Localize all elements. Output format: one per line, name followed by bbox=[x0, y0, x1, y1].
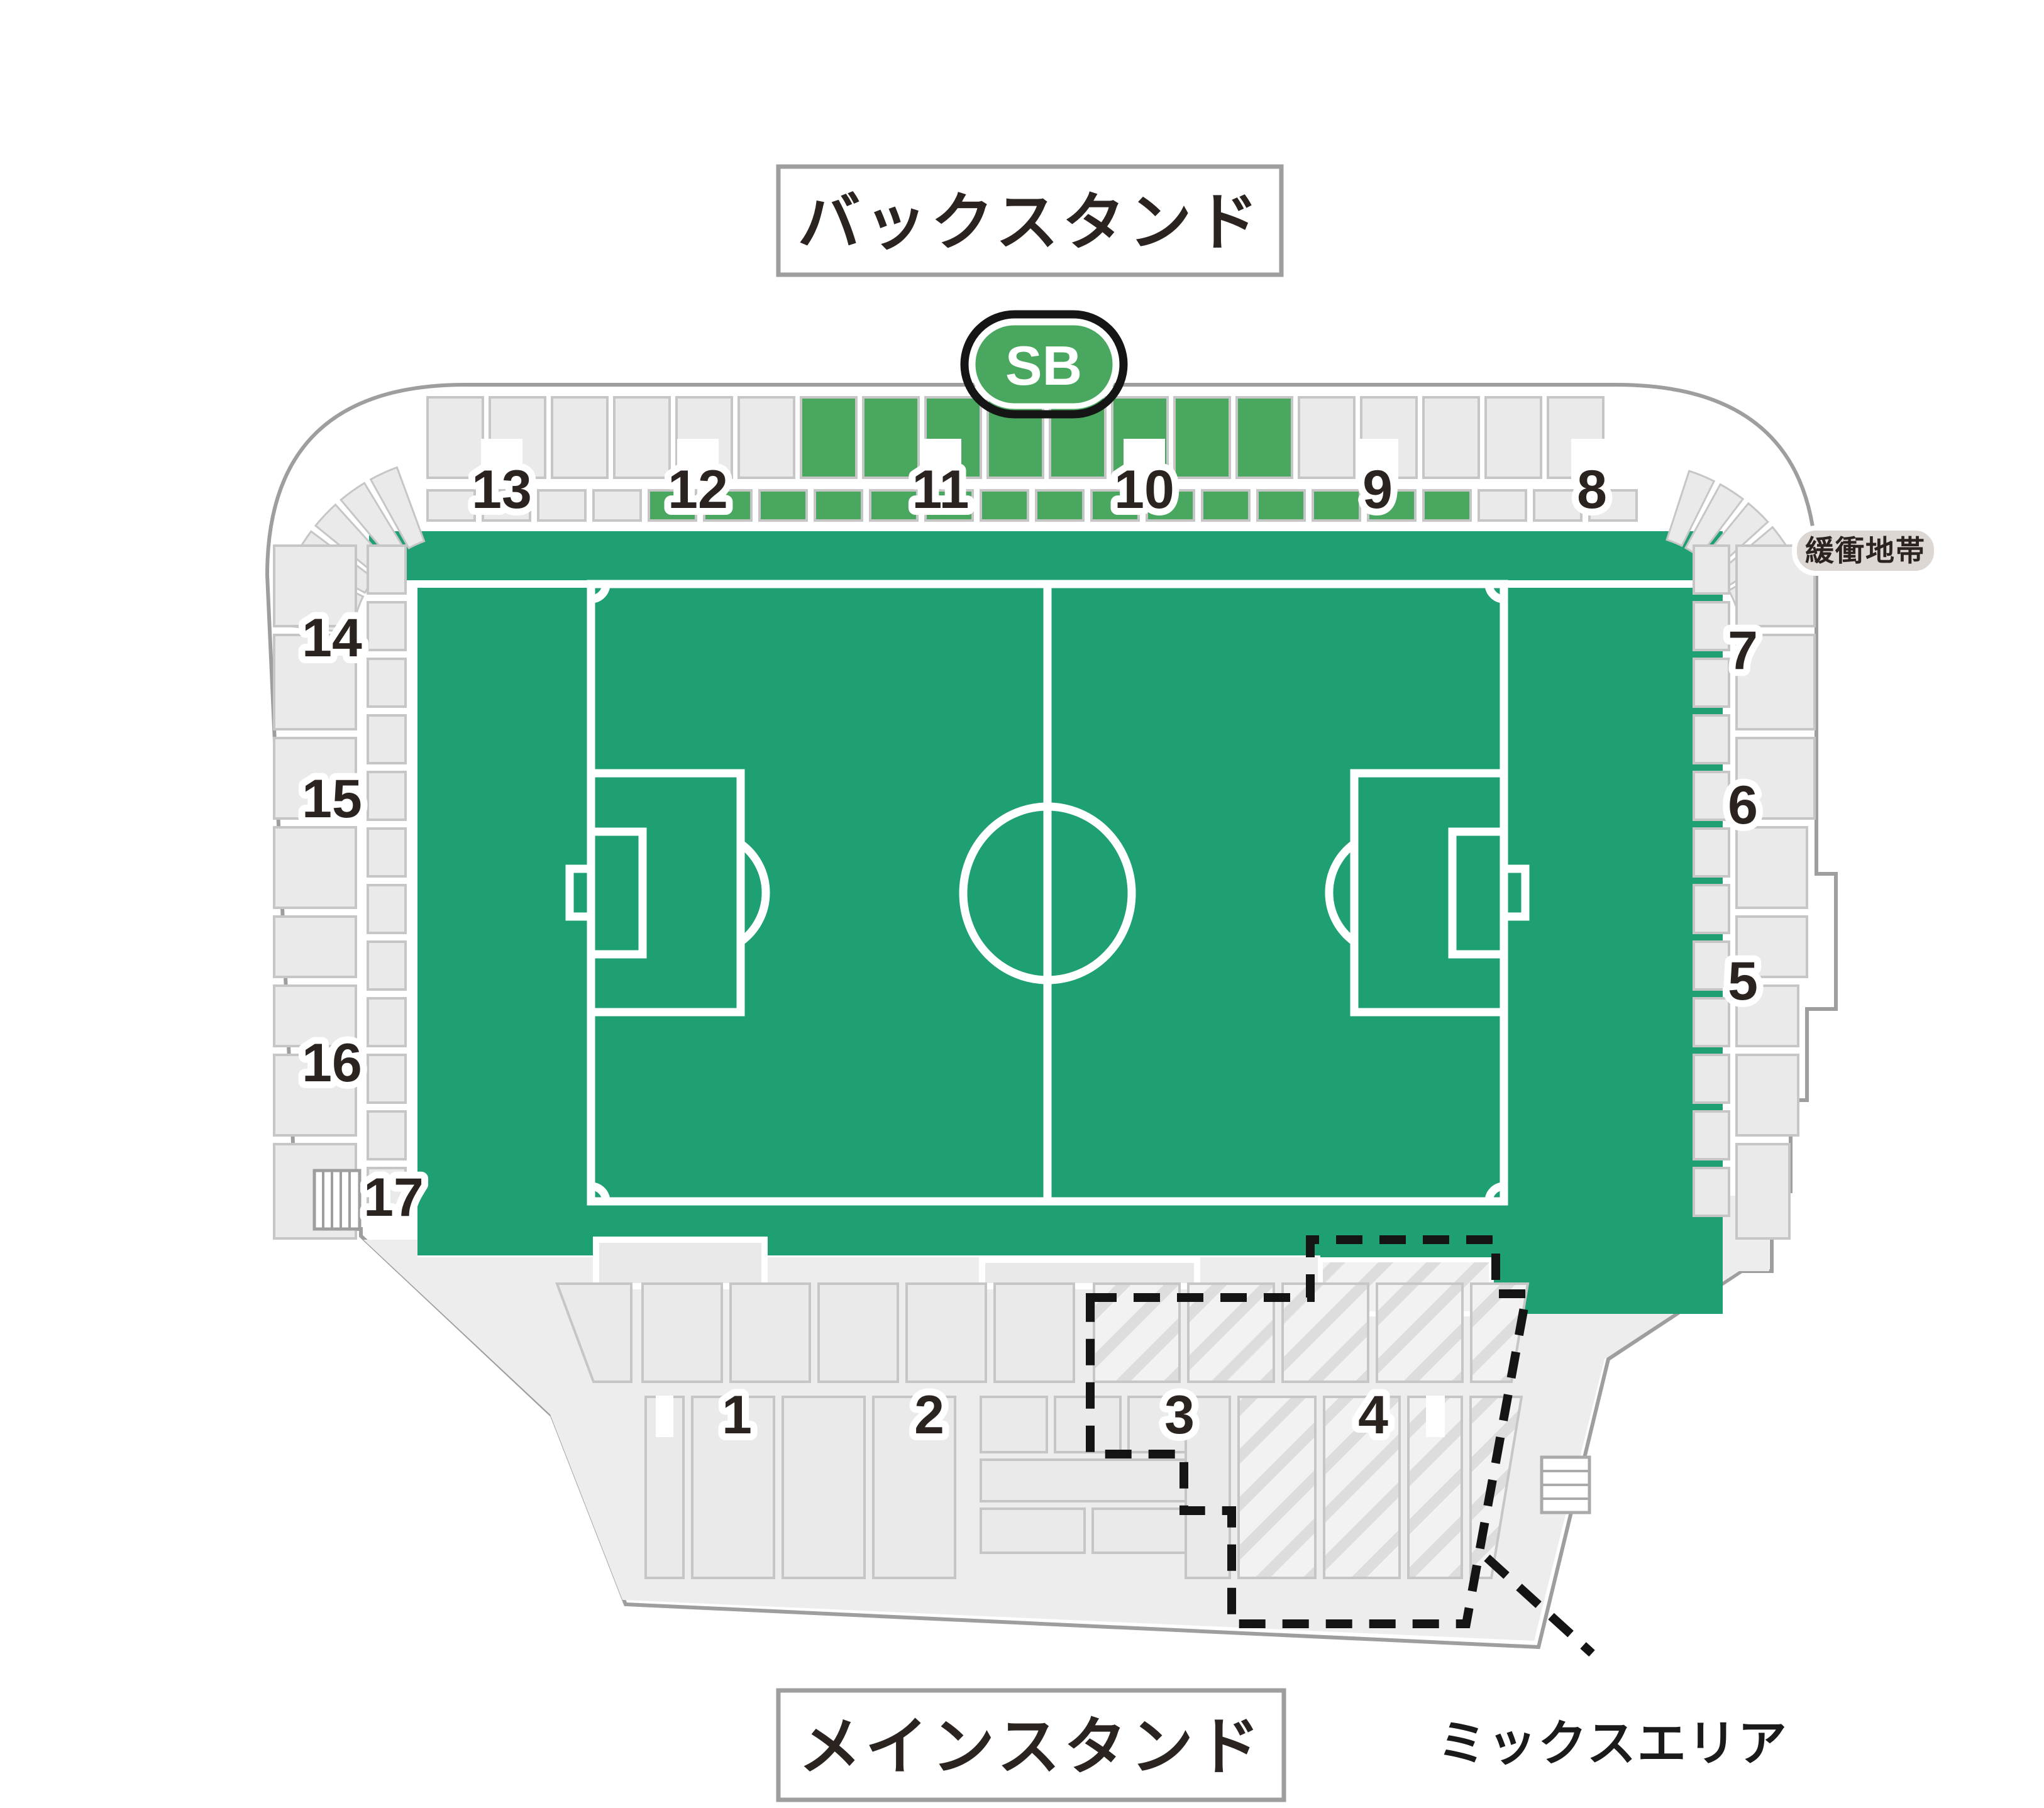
back-stand-upper-block-highlight bbox=[1237, 397, 1292, 478]
west-stand-block bbox=[274, 917, 356, 977]
west-stand-inner-block bbox=[368, 1055, 406, 1103]
back-stand-upper-block-highlight bbox=[1174, 397, 1230, 478]
back-stand-upper-block-highlight bbox=[863, 397, 919, 478]
west-stand-block bbox=[274, 827, 356, 908]
west-stand-inner-block bbox=[368, 998, 406, 1046]
section-17-label: 17 bbox=[363, 1167, 424, 1228]
stadium-seat-map-page: ミックスエリア バックスタンド SB 緩衝地帯 メインスタンド 13121110… bbox=[0, 0, 2044, 1808]
section-10-label: 10 bbox=[1114, 460, 1174, 520]
west-stand-inner-block bbox=[368, 885, 406, 933]
back-stand-lower-block-highlight bbox=[1313, 490, 1360, 521]
east-stand-block bbox=[1737, 827, 1807, 908]
east-stand-block bbox=[1737, 1144, 1789, 1238]
section-15-label: 15 bbox=[302, 769, 362, 829]
back-stand-lower-block bbox=[1534, 490, 1581, 521]
section-16-label: 16 bbox=[302, 1033, 362, 1093]
section-9-label: 9 bbox=[1362, 460, 1393, 520]
section-3-label: 3 bbox=[1164, 1385, 1195, 1445]
section-8-label: 8 bbox=[1577, 460, 1607, 520]
section-14-label: 14 bbox=[302, 608, 362, 668]
section-4-label: 4 bbox=[1358, 1385, 1388, 1445]
east-stand-inner-block bbox=[1694, 1111, 1729, 1159]
west-stand-inner-block bbox=[368, 829, 406, 876]
back-stand-lower-block-highlight bbox=[1257, 490, 1305, 521]
west-stand-inner-block bbox=[368, 602, 406, 650]
back-stand-lower-block-highlight bbox=[760, 490, 807, 521]
main-stand-upper-row bbox=[557, 1284, 1528, 1382]
section-11-label: 11 bbox=[912, 460, 970, 520]
back-stand-title-text: バックスタンド bbox=[798, 187, 1262, 258]
east-stand-inner-block bbox=[1694, 602, 1729, 650]
east-stand-inner-block bbox=[1694, 885, 1729, 933]
back-stand-lower-block bbox=[1479, 490, 1526, 521]
west-stand-inner-block bbox=[368, 659, 406, 707]
main-stand-title-text: メインスタンド bbox=[798, 1712, 1264, 1782]
field-top-band bbox=[369, 531, 1723, 580]
back-stand-lower-block-highlight bbox=[870, 490, 917, 521]
sb-badge-text: SB bbox=[1005, 334, 1082, 397]
section-7-label: 7 bbox=[1728, 620, 1758, 681]
east-stand-inner-block bbox=[1694, 942, 1729, 989]
east-stand-inner-block bbox=[1694, 659, 1729, 707]
back-stand-lower-block-highlight bbox=[1202, 490, 1249, 521]
back-stand-lower-block bbox=[428, 490, 475, 521]
back-stand-upper-block bbox=[614, 397, 670, 478]
east-stand-inner-block bbox=[1694, 998, 1729, 1046]
back-stand-upper-block bbox=[1486, 397, 1541, 478]
west-stand-inner-block bbox=[368, 772, 406, 820]
back-stand-lower-block-highlight bbox=[1036, 490, 1083, 521]
west-stand-inner-block bbox=[368, 715, 406, 763]
section-5-label: 5 bbox=[1728, 951, 1758, 1011]
mix-area-label: ミックスエリア bbox=[1437, 1716, 1788, 1771]
main-stand-title: メインスタンド bbox=[778, 1690, 1284, 1800]
east-stand-inner-block bbox=[1694, 715, 1729, 763]
east-stand-inner-block bbox=[1694, 772, 1729, 820]
section-13-label: 13 bbox=[472, 460, 532, 520]
back-stand-upper-block bbox=[1299, 397, 1354, 478]
back-stand-lower-block-highlight bbox=[1423, 490, 1471, 521]
west-stand-inner-block bbox=[368, 546, 406, 593]
back-stand-lower-block-highlight bbox=[815, 490, 862, 521]
back-stand-title: バックスタンド bbox=[778, 167, 1281, 275]
back-stand-lower-block bbox=[538, 490, 585, 521]
back-stand-upper-block bbox=[1423, 397, 1479, 478]
east-stand-block bbox=[1737, 1055, 1798, 1135]
team-bench-left bbox=[596, 1240, 765, 1286]
section-6-label: 6 bbox=[1728, 775, 1758, 835]
east-stand-inner-block bbox=[1694, 1055, 1729, 1103]
east-stand-inner-block bbox=[1694, 546, 1729, 593]
buffer-zone-badge: 緩衝地帯 bbox=[1794, 528, 1936, 573]
buffer-zone-text: 緩衝地帯 bbox=[1805, 534, 1926, 567]
back-stand-upper-block bbox=[552, 397, 607, 478]
east-stand-inner-block bbox=[1694, 829, 1729, 876]
west-stand-inner-block bbox=[368, 942, 406, 989]
west-gate bbox=[314, 1171, 360, 1229]
east-stand-inner-block bbox=[1694, 1168, 1729, 1216]
back-stand-lower-block-highlight bbox=[981, 490, 1028, 521]
back-stand-lower-block bbox=[594, 490, 641, 521]
stadium-seat-map: ミックスエリア バックスタンド SB 緩衝地帯 メインスタンド 13121110… bbox=[0, 0, 2044, 1808]
west-stand-inner-block bbox=[368, 1111, 406, 1159]
east-stairs bbox=[1542, 1457, 1589, 1513]
section-1-label: 1 bbox=[722, 1385, 752, 1445]
section-12-label: 12 bbox=[668, 460, 728, 520]
sb-badge: SB bbox=[964, 314, 1124, 414]
back-stand-upper-block-highlight bbox=[801, 397, 856, 478]
back-stand-upper-block bbox=[739, 397, 794, 478]
section-2-label: 2 bbox=[914, 1385, 944, 1445]
team-bench-center bbox=[982, 1260, 1197, 1286]
